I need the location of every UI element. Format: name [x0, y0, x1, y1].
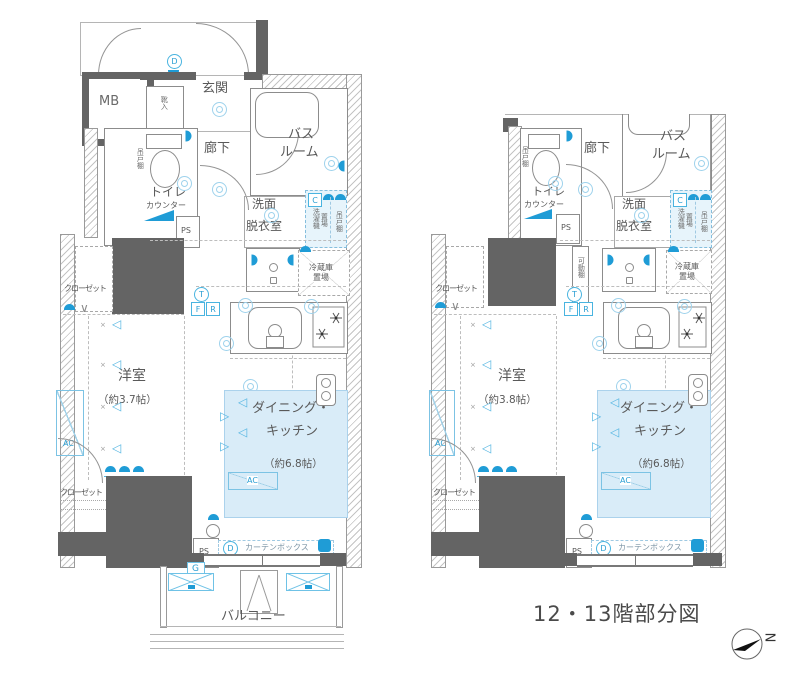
p-western-room-edge-top	[434, 314, 556, 315]
p-f-letter: F	[569, 305, 574, 314]
p-bathroom-label-2: ルーム	[652, 148, 691, 163]
p-washer-label-1: 洗濯機	[677, 208, 684, 229]
p-sconce-icon-2: ◁	[482, 358, 491, 370]
p-downlight-washroom	[634, 208, 649, 223]
p-western-room-label: 洋室	[498, 368, 526, 384]
p-fridge-space: 冷蔵庫 置場	[666, 250, 712, 294]
p-vanity-drain-icon	[625, 263, 634, 272]
p-closet-pole-icon	[435, 302, 446, 308]
p-curtain-box-label: カーテンボックス	[618, 543, 682, 552]
p-toilet-counter-label: カウンター	[524, 200, 564, 209]
p-wall-window-left	[551, 553, 577, 566]
north-compass-icon	[728, 624, 768, 664]
p-r-symbol: R	[579, 302, 593, 316]
p-tes-symbol: T	[567, 287, 582, 302]
p-pipe-space-toilet-label: PS	[561, 223, 571, 232]
p-kitchen-guide-line	[603, 358, 710, 359]
p-curtain-box: D カーテンボックス	[591, 540, 707, 555]
p-dk-sconce-4: ◁	[592, 440, 601, 452]
p-south-window	[577, 554, 693, 567]
p-closet-c-badge: C	[673, 193, 687, 207]
p-curtain-d-letter: D	[600, 544, 606, 553]
p-closet-check-mark: ∨	[451, 300, 460, 314]
p-t-letter: T	[572, 290, 577, 299]
partial-floor-plan-12-13: バス ルーム 吊戸棚 トイレ カウンター PS 廊下 洗面 脱衣室	[0, 0, 800, 687]
p-vanity-right-icon	[644, 255, 650, 266]
p-sconce-icon-1: ◁	[482, 318, 491, 330]
p-f-symbol: F	[564, 302, 578, 316]
p-dk-sconce-1: ◁	[610, 396, 619, 408]
p-ac-dk-label: AC	[620, 476, 631, 485]
p-dk-sconce-2: ◁	[592, 410, 601, 422]
p-sconce-cross-2: ×	[470, 362, 476, 369]
p-fridge-outlet-icon	[668, 246, 679, 252]
p-wall-hatch-right	[710, 114, 726, 568]
p-curtain-switch-icon	[691, 539, 704, 552]
p-washer-divider	[695, 197, 696, 243]
p-outlet-group	[477, 462, 519, 477]
p-r-letter: R	[583, 305, 589, 314]
p-downlight-hall	[548, 176, 563, 191]
p-sconce-cross-3: ×	[470, 404, 476, 411]
caption-floor-note: 12・13階部分図	[533, 598, 700, 628]
p-ac-unit-dk: AC	[601, 472, 651, 490]
floorplan-canvas: D MB 靴入 玄関 バス ルーム 吊戸棚 トイレ	[0, 0, 800, 687]
p-closet-upper-label: クローゼット	[435, 284, 477, 293]
p-sconce-icon-4: ◁	[482, 442, 491, 454]
p-bathroom-label-1: バス	[660, 130, 686, 145]
p-window-outlet-2	[579, 524, 593, 538]
p-dk-label-1: ダイニング・	[620, 402, 698, 417]
p-corridor-label: 廊下	[584, 142, 610, 157]
p-sconce-icon-3: ◁	[482, 400, 491, 412]
p-structure-block-mid	[488, 238, 556, 306]
p-downlight-corridor	[578, 182, 593, 197]
p-guide-line-2	[566, 286, 710, 287]
p-kitchen-faucet-base	[635, 336, 653, 348]
p-water-heater	[688, 374, 708, 406]
p-washer-icon-b	[700, 194, 711, 200]
p-water-heater-dial-1	[693, 378, 703, 388]
p-downlight-dk-3	[592, 336, 607, 351]
p-toilet-shelf-label: 吊戸棚	[521, 146, 528, 167]
p-outlet-icon-1	[478, 466, 489, 472]
p-c-letter: C	[677, 196, 683, 205]
p-dk-label-2: キッチン	[634, 425, 686, 440]
p-structure-block-foot	[431, 532, 479, 556]
p-washer-label-2: 置場	[685, 213, 692, 227]
p-wall-window-right	[693, 553, 722, 566]
p-vanity-outlet-icon	[626, 277, 633, 284]
p-closet-lower-shelf-lines	[433, 500, 479, 510]
p-downlight-dk-2	[677, 299, 692, 314]
p-toilet-tank	[528, 134, 560, 149]
p-vanity-left-icon	[608, 255, 614, 266]
north-label: N	[761, 633, 776, 643]
p-fridge-label-1: 冷蔵庫	[675, 262, 699, 271]
p-washroom-label-2: 脱衣室	[616, 220, 652, 234]
p-sconce-cross-4: ×	[470, 446, 476, 453]
p-western-room-edge-right	[556, 316, 557, 480]
p-fridge-label-2: 置場	[679, 272, 695, 281]
p-closet-lower-label: クローゼット	[433, 488, 475, 497]
p-outlet-icon-3	[506, 466, 517, 472]
p-downlight-dk-1	[611, 298, 626, 313]
north-compass: N	[728, 624, 786, 666]
p-dk-area-label: （約6.8帖）	[632, 458, 691, 470]
p-sconce-cross-1: ×	[470, 322, 476, 329]
p-downlight-bath	[694, 156, 709, 171]
p-washer-icon-a	[688, 194, 699, 200]
p-hanging-shelf-label: 吊戸棚	[700, 211, 707, 232]
p-movable-shelf-label: 可動棚	[577, 257, 584, 278]
p-guide-line-1	[560, 240, 710, 241]
p-window-outlet-1	[581, 514, 592, 520]
p-water-heater-dial-2	[693, 391, 703, 401]
p-outlet-icon-2	[492, 466, 503, 472]
p-dk-sconce-3: ◁	[610, 426, 619, 438]
